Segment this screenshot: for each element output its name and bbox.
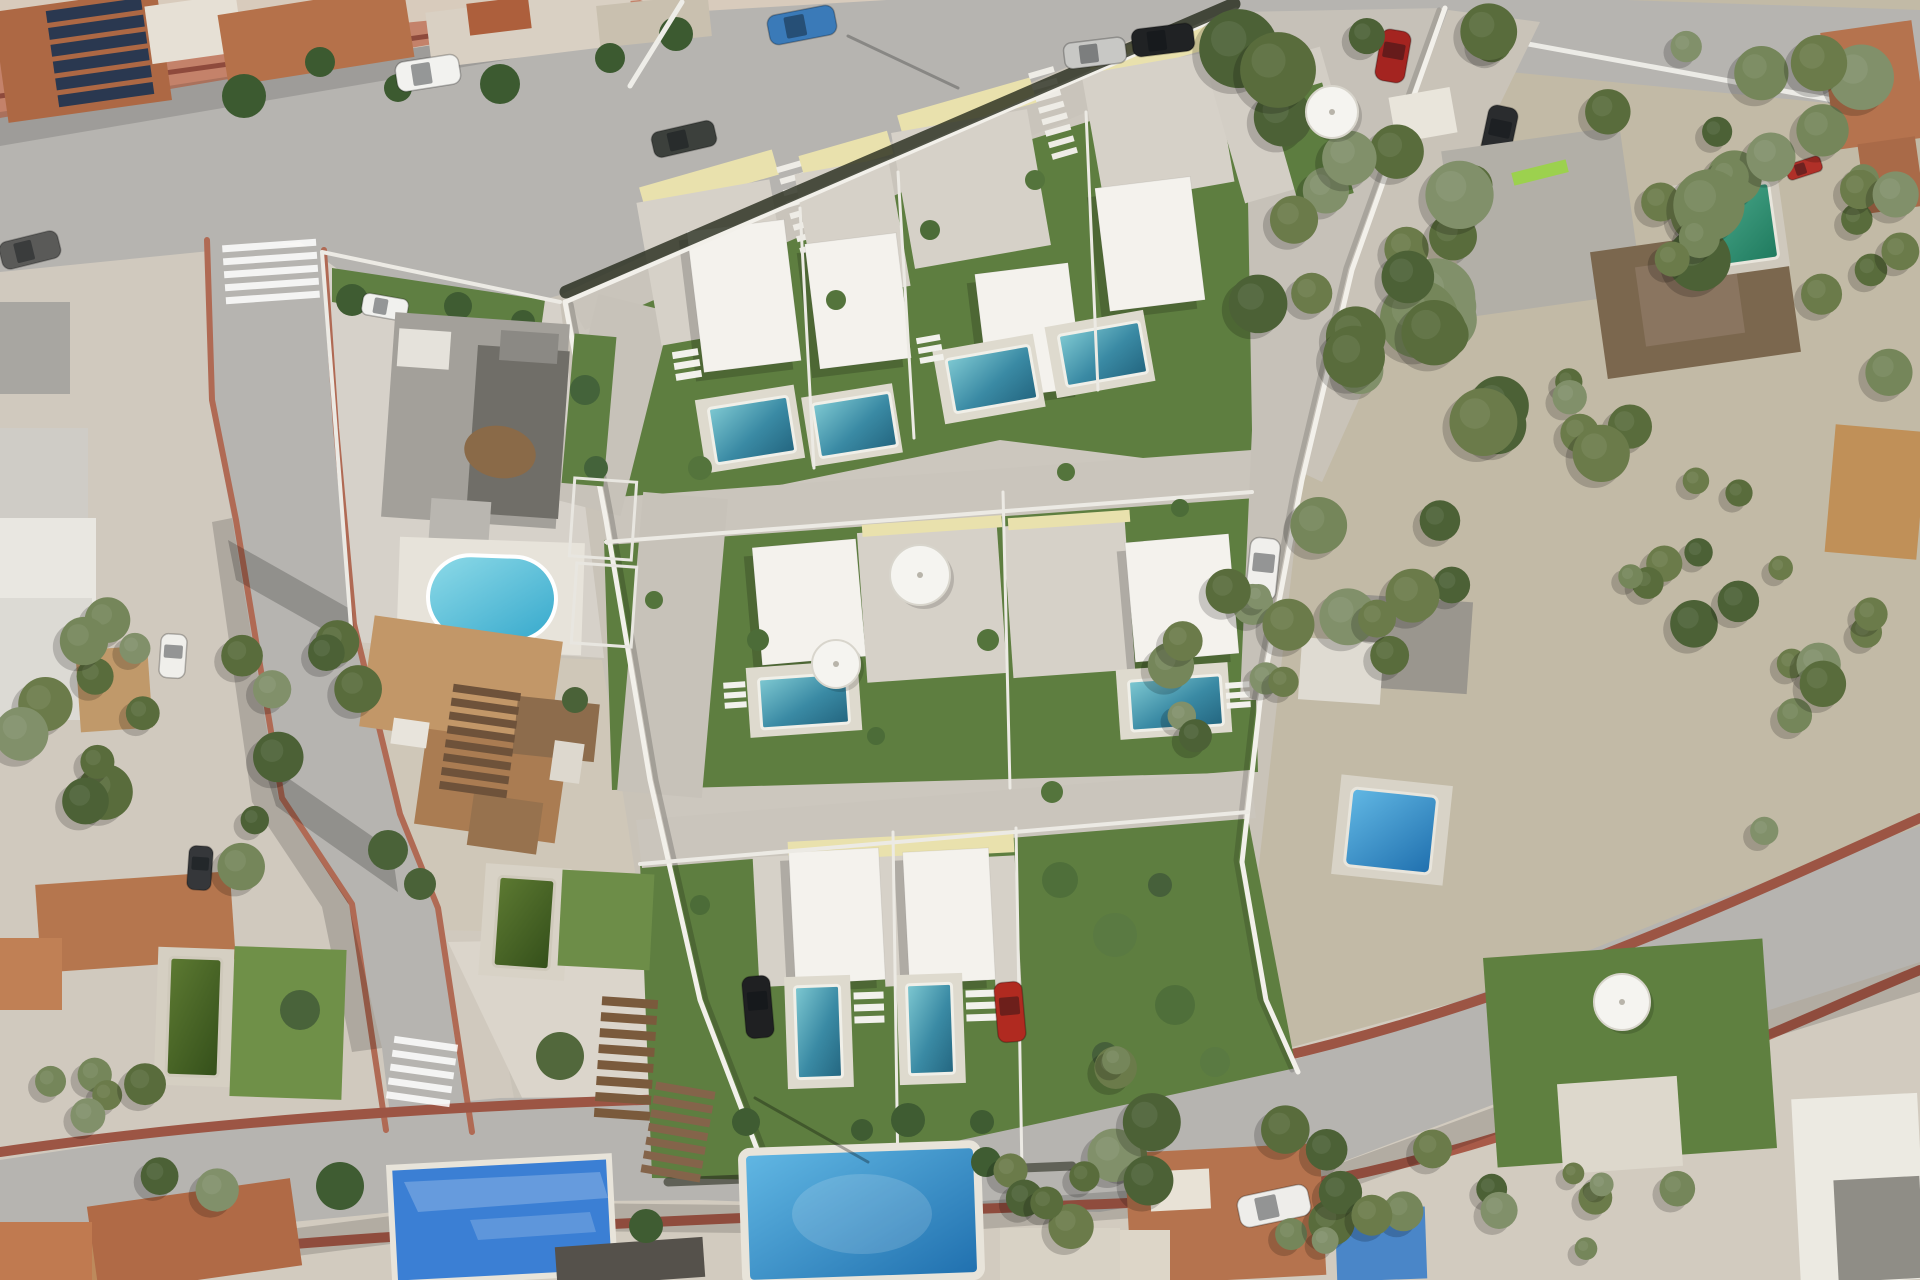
palm-tree xyxy=(851,1119,873,1141)
pool-highlight xyxy=(792,1174,932,1254)
villa7-pool xyxy=(794,985,842,1079)
palm-tree xyxy=(891,1103,925,1137)
villa1-pool xyxy=(708,396,796,464)
villa4-roof xyxy=(1086,177,1206,321)
villa3-loungers xyxy=(916,334,944,364)
scene-root xyxy=(0,0,1920,1280)
garden-tree xyxy=(1148,873,1172,897)
shrub xyxy=(690,895,710,915)
green-pool xyxy=(493,876,555,970)
garden-tree xyxy=(1042,862,1078,898)
shrub xyxy=(1041,781,1063,803)
screenshot-root xyxy=(0,0,1920,1280)
shrub xyxy=(826,290,846,310)
se-deck xyxy=(1557,1076,1683,1174)
garden-tree xyxy=(584,456,608,480)
garden-tree xyxy=(404,868,436,900)
se-house-roof xyxy=(1833,1176,1920,1280)
plot-b-wall-bit2 xyxy=(549,740,584,784)
garden-tree xyxy=(1093,913,1137,957)
garden-tree xyxy=(536,1032,584,1080)
villa5-loungers xyxy=(723,681,747,708)
plot-b-roof-4 xyxy=(467,793,544,854)
dev-car-red2 xyxy=(993,981,1026,1043)
west-bldg-1 xyxy=(0,428,88,520)
dev-car-black xyxy=(741,975,774,1039)
shrub xyxy=(977,629,999,651)
villa1-loungers xyxy=(672,348,702,381)
garden-tree xyxy=(1155,985,1195,1025)
villa8-pool xyxy=(906,983,954,1075)
shrub xyxy=(1057,463,1075,481)
villa7-loungers xyxy=(853,991,884,1023)
palm-tree xyxy=(970,1110,994,1134)
parked-van-white xyxy=(158,633,187,679)
shrub xyxy=(688,456,712,480)
villa7-roof xyxy=(780,848,886,993)
blue-pool xyxy=(1344,788,1438,875)
parked-car-dark xyxy=(186,845,213,891)
shrub xyxy=(645,591,663,609)
plot-a-house-block xyxy=(397,328,452,370)
palm-tree xyxy=(629,1209,663,1243)
palm-tree xyxy=(222,74,266,118)
villa3-terrace xyxy=(891,109,1051,269)
palm-tree xyxy=(595,43,625,73)
villa8-loungers xyxy=(965,989,996,1021)
villa6-terrace xyxy=(1003,518,1135,678)
villa2-roof xyxy=(796,233,913,378)
shrub xyxy=(1171,499,1189,517)
palm-tree xyxy=(305,47,335,77)
s-roof-terracotta2 xyxy=(0,1222,92,1280)
shrub xyxy=(1025,170,1045,190)
aerial-photo xyxy=(0,0,1920,1280)
villa2-pool xyxy=(812,392,897,458)
plot-b-wall-bit xyxy=(390,718,429,749)
shrub xyxy=(747,629,769,651)
villa8-roof xyxy=(894,848,996,993)
shrub xyxy=(867,727,885,745)
garden-tree xyxy=(280,990,320,1030)
palm-tree xyxy=(316,1162,364,1210)
west-bldg-gray xyxy=(0,302,70,394)
plot-a-house-block2 xyxy=(499,330,559,364)
garden-tree xyxy=(368,830,408,870)
garden-tree xyxy=(570,375,600,405)
garden-tree xyxy=(1200,1047,1230,1077)
plot-b-lawn xyxy=(558,870,655,971)
garden-tree xyxy=(562,687,588,713)
shrub xyxy=(920,220,940,240)
east-roof-tan xyxy=(1825,424,1920,560)
green-pool2 xyxy=(166,957,222,1077)
palm-tree xyxy=(732,1108,760,1136)
palm-tree xyxy=(444,292,472,320)
palm-tree xyxy=(480,64,520,104)
west-roof-terracotta2 xyxy=(0,938,62,1010)
plot-a-house-block3 xyxy=(429,498,492,542)
